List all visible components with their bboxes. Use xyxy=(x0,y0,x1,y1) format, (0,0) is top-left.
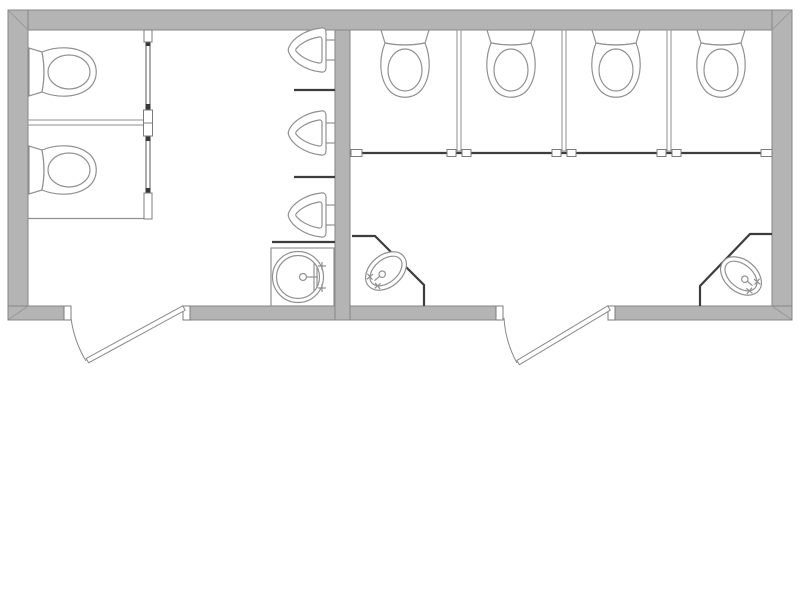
stall-door-jamb xyxy=(447,150,456,157)
sink-drain xyxy=(300,274,307,281)
stall-wall-tick xyxy=(146,188,151,193)
stall-partition xyxy=(457,30,461,151)
stall-door-jamb xyxy=(567,150,576,157)
urinal-symbol xyxy=(288,193,335,237)
right-restroom xyxy=(351,30,772,306)
stall-partition xyxy=(562,30,566,151)
left-restroom xyxy=(28,28,335,306)
outer-wall-left xyxy=(8,10,28,320)
door-swing-arc xyxy=(71,318,86,361)
toilet-symbol xyxy=(697,30,745,97)
stall-door-jamb xyxy=(761,150,772,157)
floor-plan-drawing xyxy=(0,0,800,600)
stall-door-jamb xyxy=(552,150,561,157)
dividing-wall xyxy=(335,30,350,320)
bottom-wall-segment xyxy=(615,306,792,320)
stall-door-jamb xyxy=(462,150,471,157)
stall-door-jamb xyxy=(144,30,152,42)
stall-door-jamb xyxy=(672,150,681,157)
toilet-symbol xyxy=(29,48,96,96)
entry-door-leaf xyxy=(86,306,185,363)
stall-door-jamb xyxy=(657,150,666,157)
corner-sink xyxy=(352,236,424,306)
bottom-wall-segment xyxy=(8,306,64,320)
stall-door-jamb xyxy=(351,150,362,157)
door-swing-arc xyxy=(504,318,517,363)
corner-sink-basin xyxy=(358,244,414,298)
toilet-symbol xyxy=(381,30,429,97)
stall-partition xyxy=(667,30,671,151)
stall-wall-tick xyxy=(146,42,151,46)
door-jamb xyxy=(64,306,71,320)
outer-wall-right xyxy=(772,10,792,320)
urinal-symbol xyxy=(288,28,335,72)
right-entry-door xyxy=(496,306,615,365)
toilet-symbol xyxy=(487,30,535,97)
stall-door-jamb xyxy=(144,123,153,136)
corner-sink-basin xyxy=(713,249,769,303)
stall-door-jamb xyxy=(144,193,152,219)
corner-sink xyxy=(700,234,772,306)
toilet-symbol xyxy=(29,146,96,194)
entry-door-leaf xyxy=(517,306,610,365)
floor-plan-canvas xyxy=(0,0,800,600)
stall-door-jamb xyxy=(144,110,153,123)
vanity-sink xyxy=(271,248,334,306)
door-jamb xyxy=(496,306,503,320)
stall-partition xyxy=(28,120,144,125)
urinal-symbol xyxy=(288,111,335,155)
stall-wall-tick xyxy=(146,104,151,110)
toilet-symbol xyxy=(592,30,640,97)
outer-wall-top xyxy=(8,10,792,30)
stall-wall-tick xyxy=(146,136,151,141)
left-entry-door xyxy=(64,306,190,363)
